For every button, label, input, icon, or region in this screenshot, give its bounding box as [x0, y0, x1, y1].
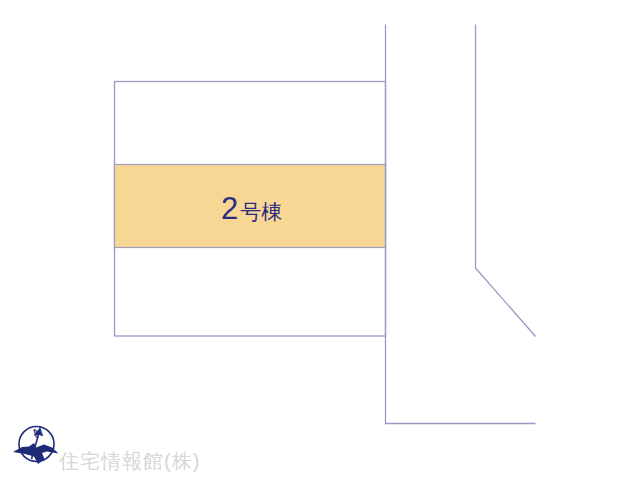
parcel-block: 2号棟: [115, 82, 386, 337]
company-watermark: 住宅情報館(株): [58, 450, 200, 472]
plot-map-page: 2号棟 N 住宅情報館(株): [0, 0, 640, 480]
road-diagonal-line: [476, 268, 536, 337]
parcel-2-suffix: 号棟: [240, 200, 282, 223]
compass: N: [13, 424, 59, 464]
parcel-2-number: 2: [221, 191, 238, 226]
road-boundary-lines: [385, 25, 536, 424]
plot-map-drawing: 2号棟 N 住宅情報館(株): [0, 0, 640, 480]
compass-north-label: N: [31, 424, 45, 441]
